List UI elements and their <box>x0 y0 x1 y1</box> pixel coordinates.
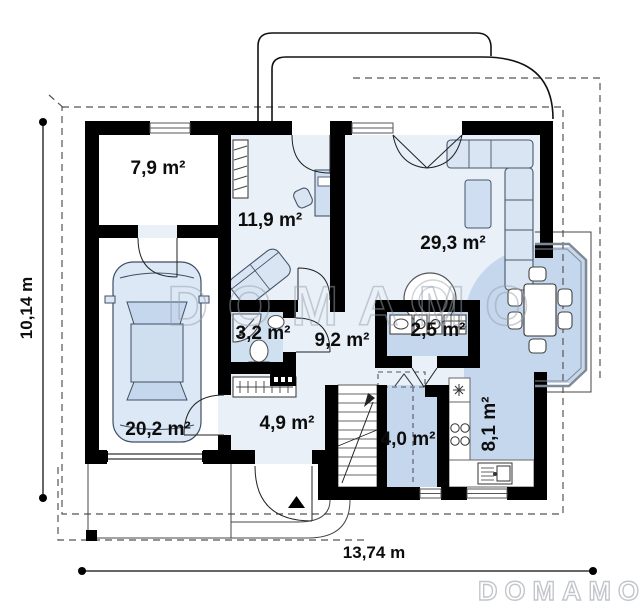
vent-grille <box>270 374 296 386</box>
room-area-label-4-9: 4,9 m² <box>260 413 315 435</box>
room-area-label-8-1: 8,1 m² <box>479 397 501 452</box>
room-area-label-2-5: 2,5 m² <box>411 320 466 342</box>
side-table <box>465 180 491 228</box>
dimension-height-label: 10,14 m <box>17 277 37 339</box>
radiator <box>233 140 248 198</box>
room-area-label-9-2: 9,2 m² <box>315 330 370 352</box>
room-area-label-4-0: 4,0 m² <box>381 429 436 451</box>
room-area-label-29-3: 29,3 m² <box>420 233 485 255</box>
gate-post <box>86 530 97 541</box>
watermark-corner: DOMAMO <box>478 576 640 606</box>
dimension-width-label: 13,74 m <box>343 543 405 563</box>
floor-plan-drawing: DOMAMO DOMAMO <box>0 0 640 608</box>
room-area-label-7-9: 7,9 m² <box>131 158 186 180</box>
room-area-label-11-9: 11,9 m² <box>238 210 302 232</box>
canopy-outline <box>258 33 553 121</box>
stairs <box>338 385 377 487</box>
floor-plan: DOMAMO DOMAMO 7,9 m² 11,9 m² 29,3 m² 3,2… <box>0 0 640 608</box>
room-area-label-3-2: 3,2 m² <box>236 323 291 345</box>
watermark-center: DOMAMO <box>167 274 548 337</box>
room-area-label-20-2: 20,2 m² <box>125 419 190 441</box>
kitchen-sink <box>478 463 512 484</box>
